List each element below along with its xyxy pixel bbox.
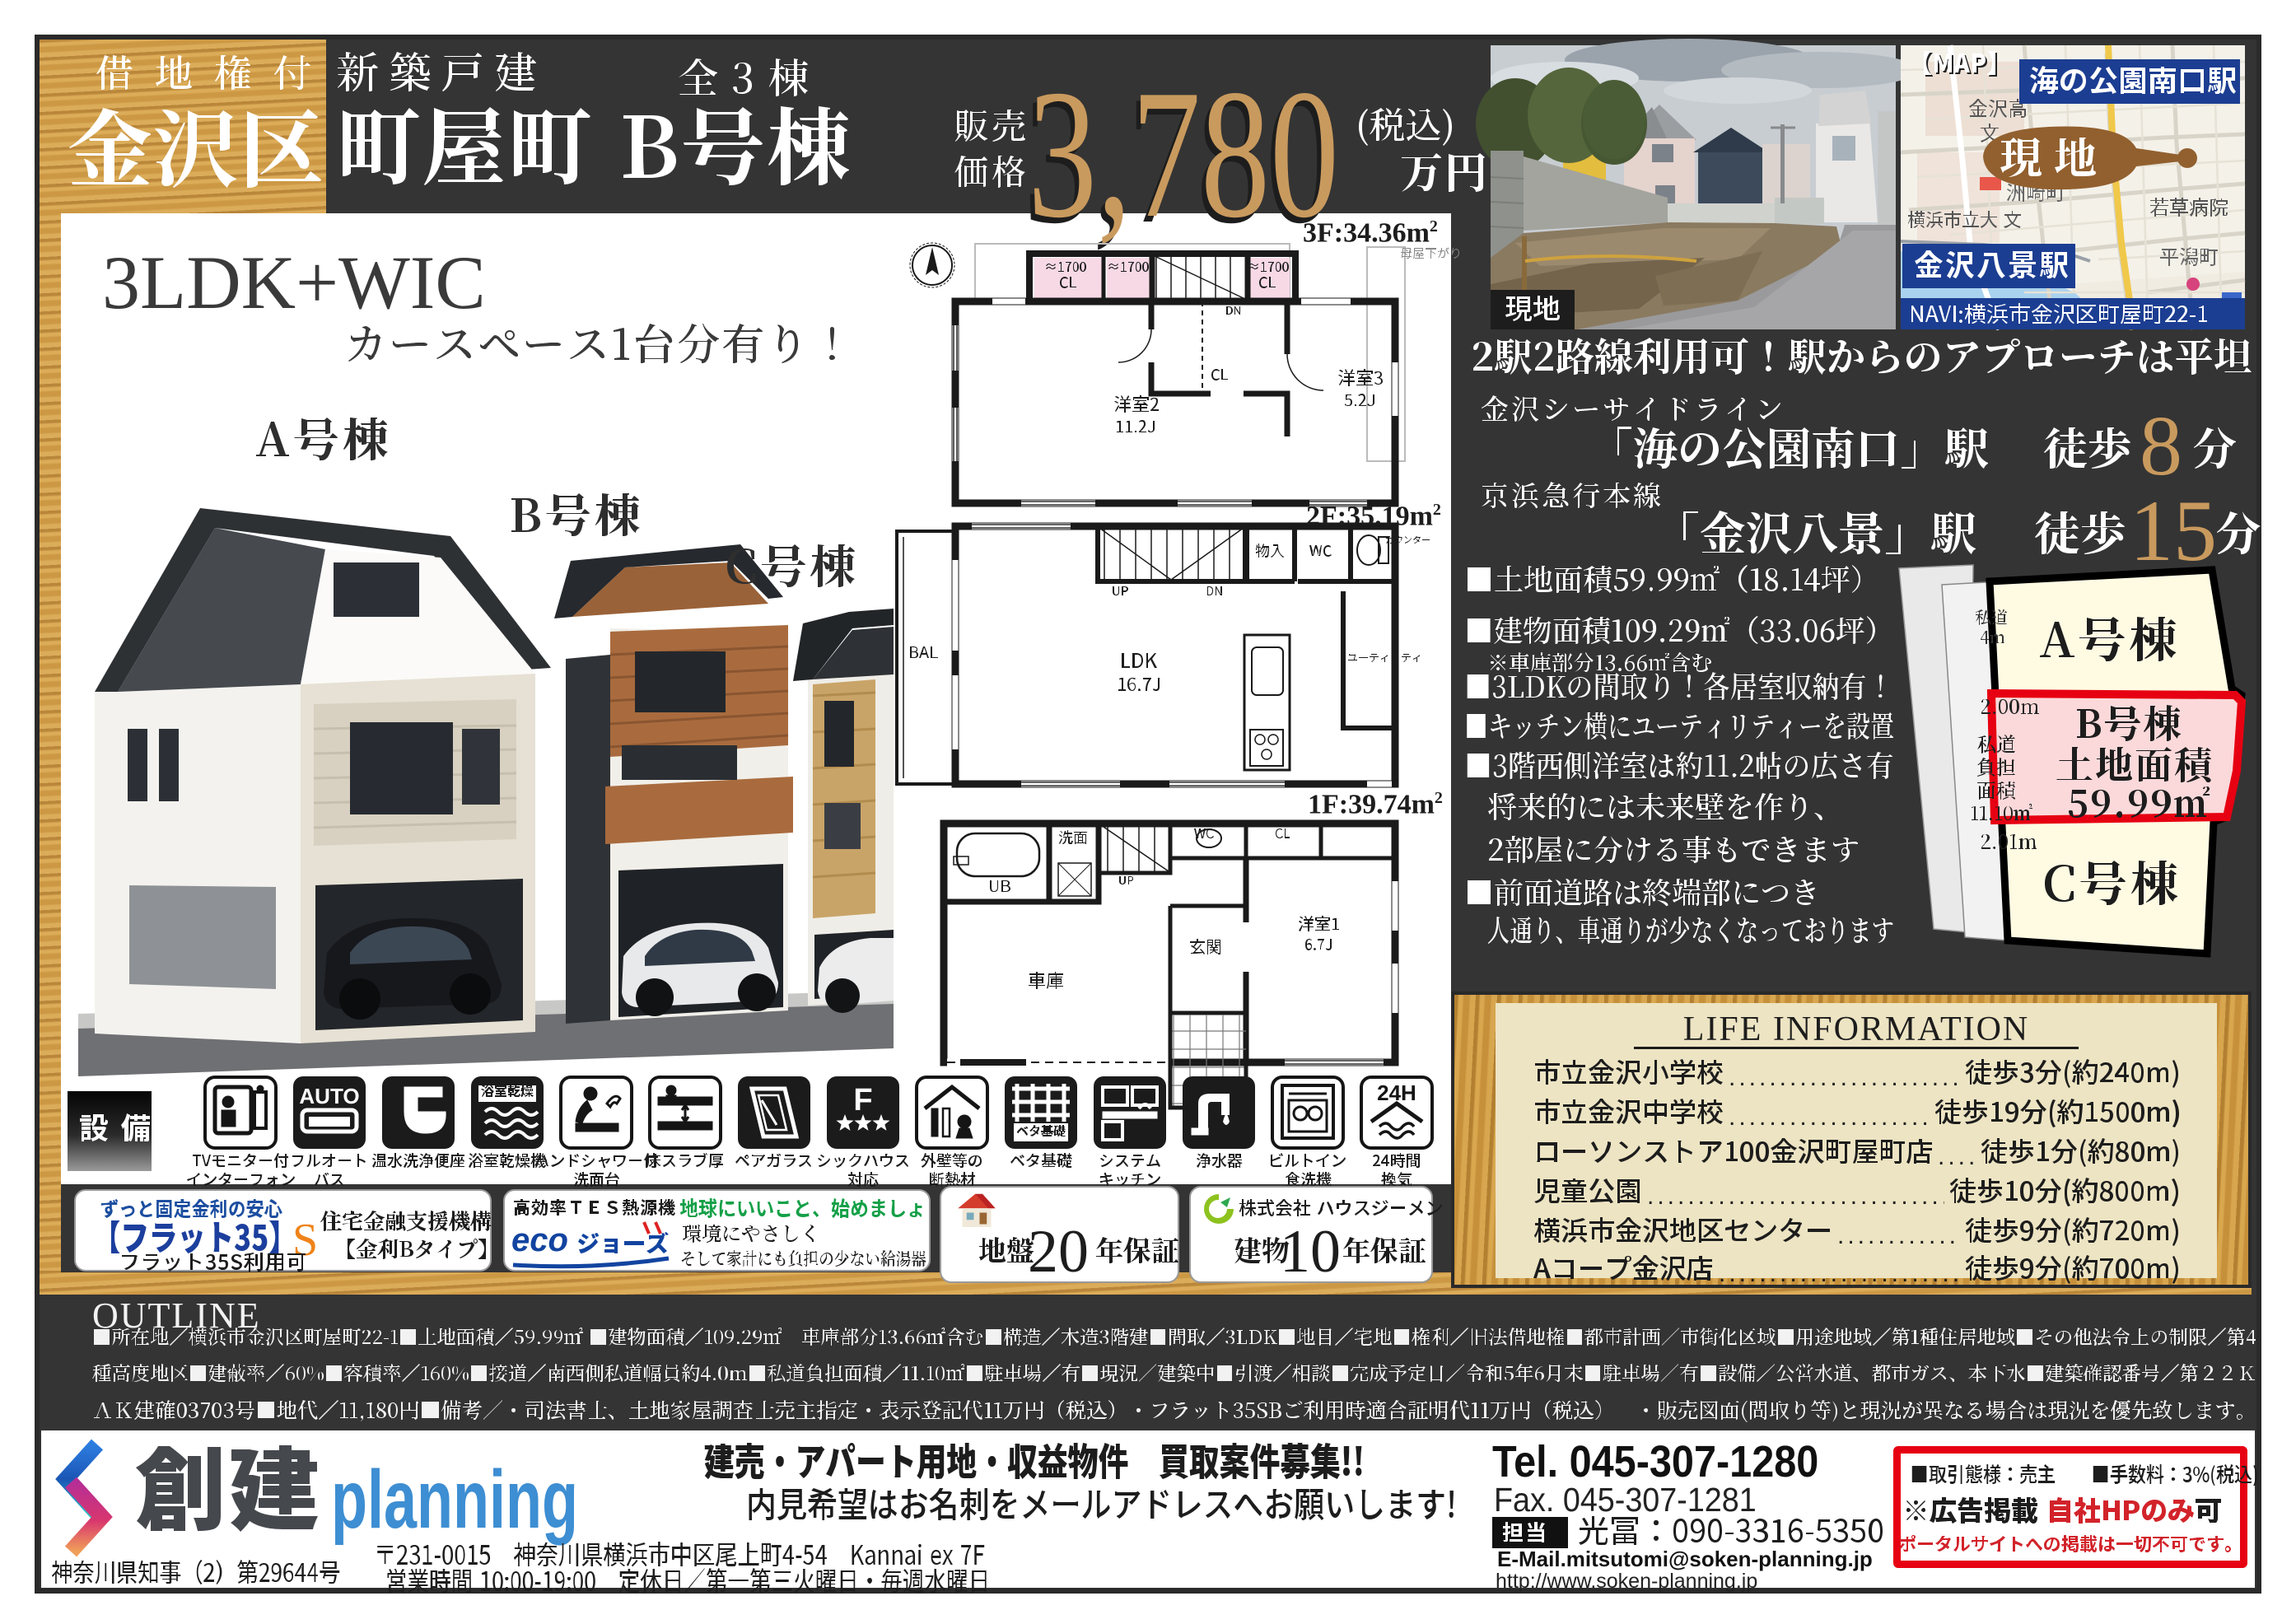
svg-text:AUTO: AUTO	[299, 1084, 359, 1108]
svg-text:F: F	[853, 1083, 872, 1118]
